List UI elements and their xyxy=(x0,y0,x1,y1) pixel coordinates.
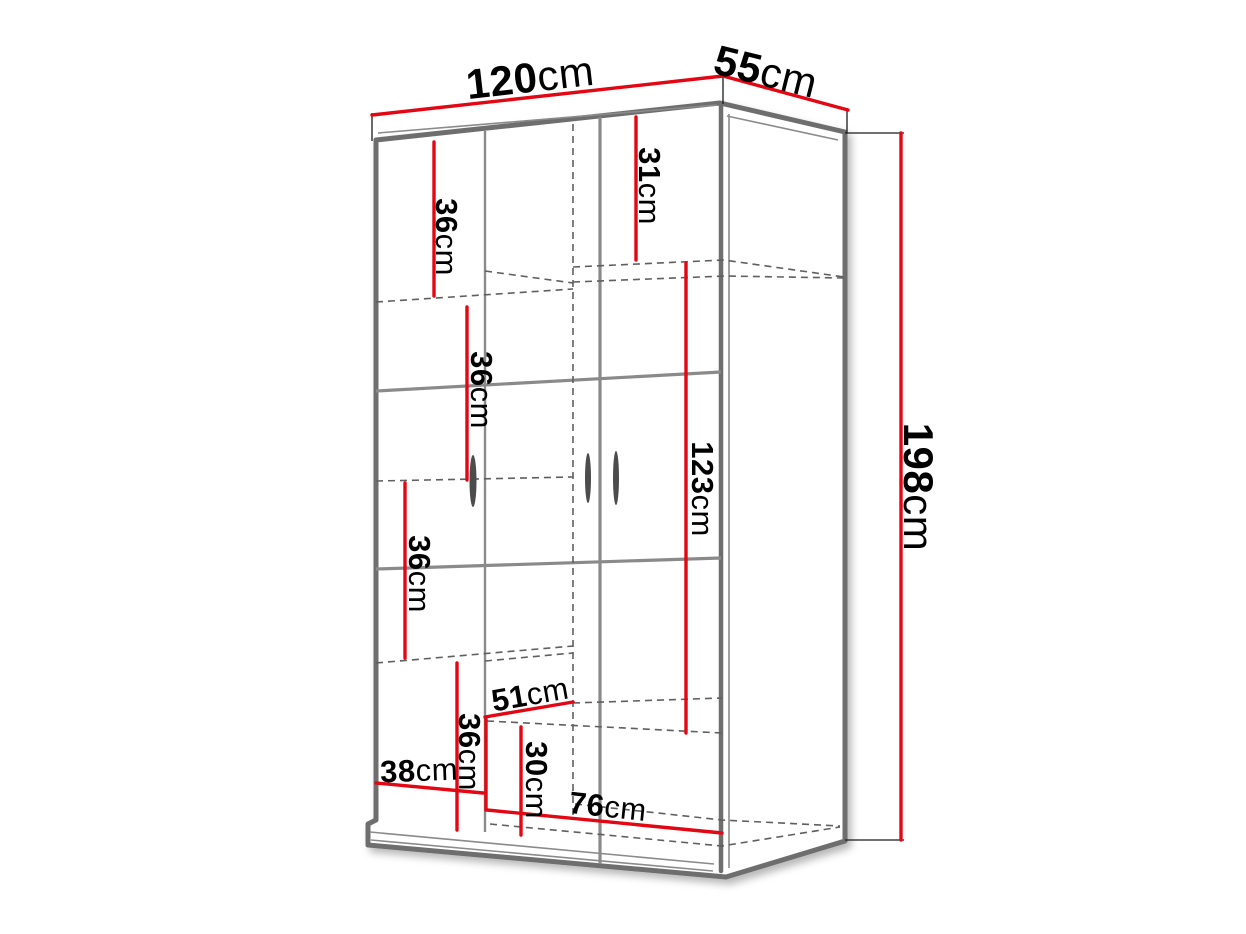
dim-label-top-shelf-left: 36cm xyxy=(430,198,465,276)
door-handle-right xyxy=(613,451,619,505)
wardrobe-dimension-diagram: 120cm55cm198cm36cm31cm36cm123cm36cm51cm3… xyxy=(0,0,1246,934)
door-handle-left xyxy=(470,455,477,507)
dim-label-height-right: 198cm xyxy=(896,423,943,552)
dim-label-depth-top: 55cm xyxy=(710,36,823,107)
dim-label-top-shelf-right: 31cm xyxy=(633,147,668,225)
drawing-canvas: 120cm55cm198cm36cm31cm36cm123cm36cm51cm3… xyxy=(0,0,1246,934)
dim-label-shelf-third: 36cm xyxy=(403,535,438,613)
dim-label-left-section-width: 38cm xyxy=(380,751,459,789)
door-handle-middle xyxy=(585,453,591,503)
dim-label-shelf-second: 36cm xyxy=(465,351,500,429)
dim-label-width-top: 120cm xyxy=(463,46,596,107)
dim-label-hanging-section: 123cm xyxy=(686,441,721,537)
dim-label-bottom-section: 30cm xyxy=(520,741,555,819)
